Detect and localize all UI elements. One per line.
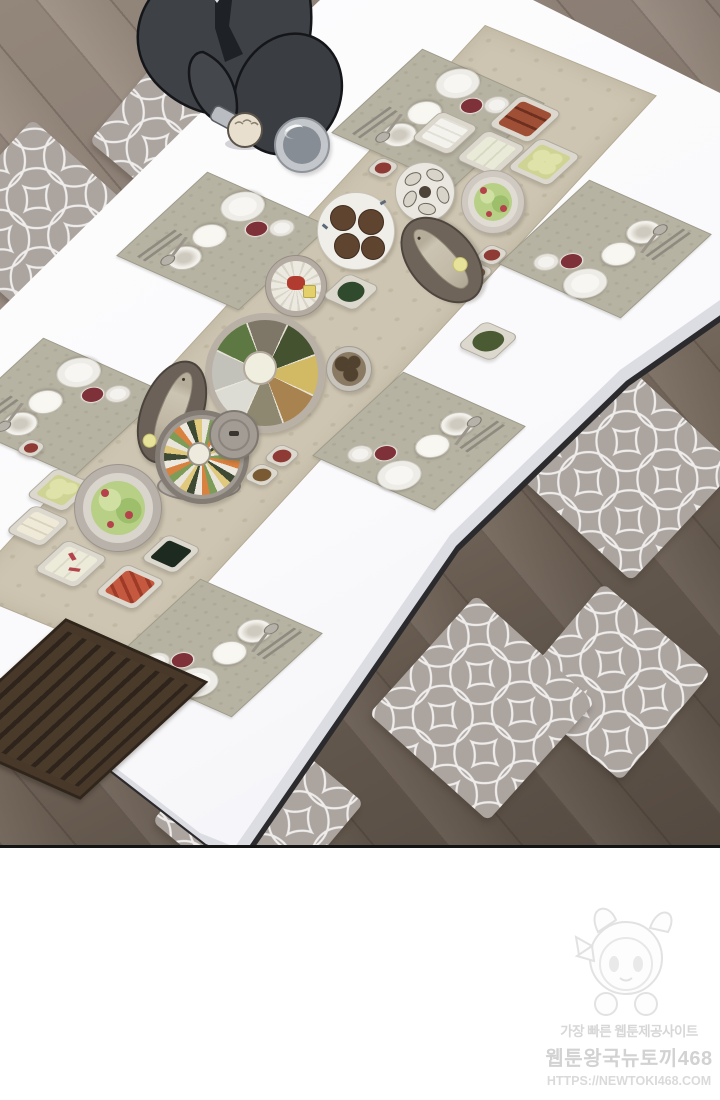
drinking-glass — [274, 117, 330, 173]
steamer-lid — [209, 410, 259, 460]
side-bowl — [342, 442, 378, 466]
side-bowl — [264, 216, 300, 240]
salad-plate — [461, 170, 525, 234]
side-bowl — [528, 250, 564, 274]
jeon-plate — [317, 192, 395, 270]
watermark: 가장 빠른 웹툰제공사이트 웹툰왕국뉴토끼468 HTTPS://NEWTOKI… — [538, 1020, 720, 1088]
watermark-mascot-icon — [548, 900, 703, 1025]
watermark-tagline: 가장 빠른 웹툰제공사이트 — [538, 1020, 720, 1040]
mushroom-bowl — [326, 346, 372, 392]
fist — [228, 113, 262, 147]
watermark-site-name: 웹툰왕국뉴토끼468 — [538, 1042, 720, 1071]
side-bowl — [100, 382, 136, 406]
radial-slice-platter — [265, 255, 327, 317]
comic-panel — [0, 0, 720, 845]
panel-border — [0, 845, 720, 848]
center-sauce-bowl — [243, 351, 277, 385]
oyster-plate — [395, 162, 455, 222]
watermark-url: HTTPS://NEWTOKI468.COM — [538, 1074, 720, 1088]
salad-plate-2 — [74, 464, 162, 552]
webtoon-page: 가장 빠른 웹툰제공사이트 웹툰왕국뉴토끼468 HTTPS://NEWTOKI… — [0, 0, 720, 1100]
